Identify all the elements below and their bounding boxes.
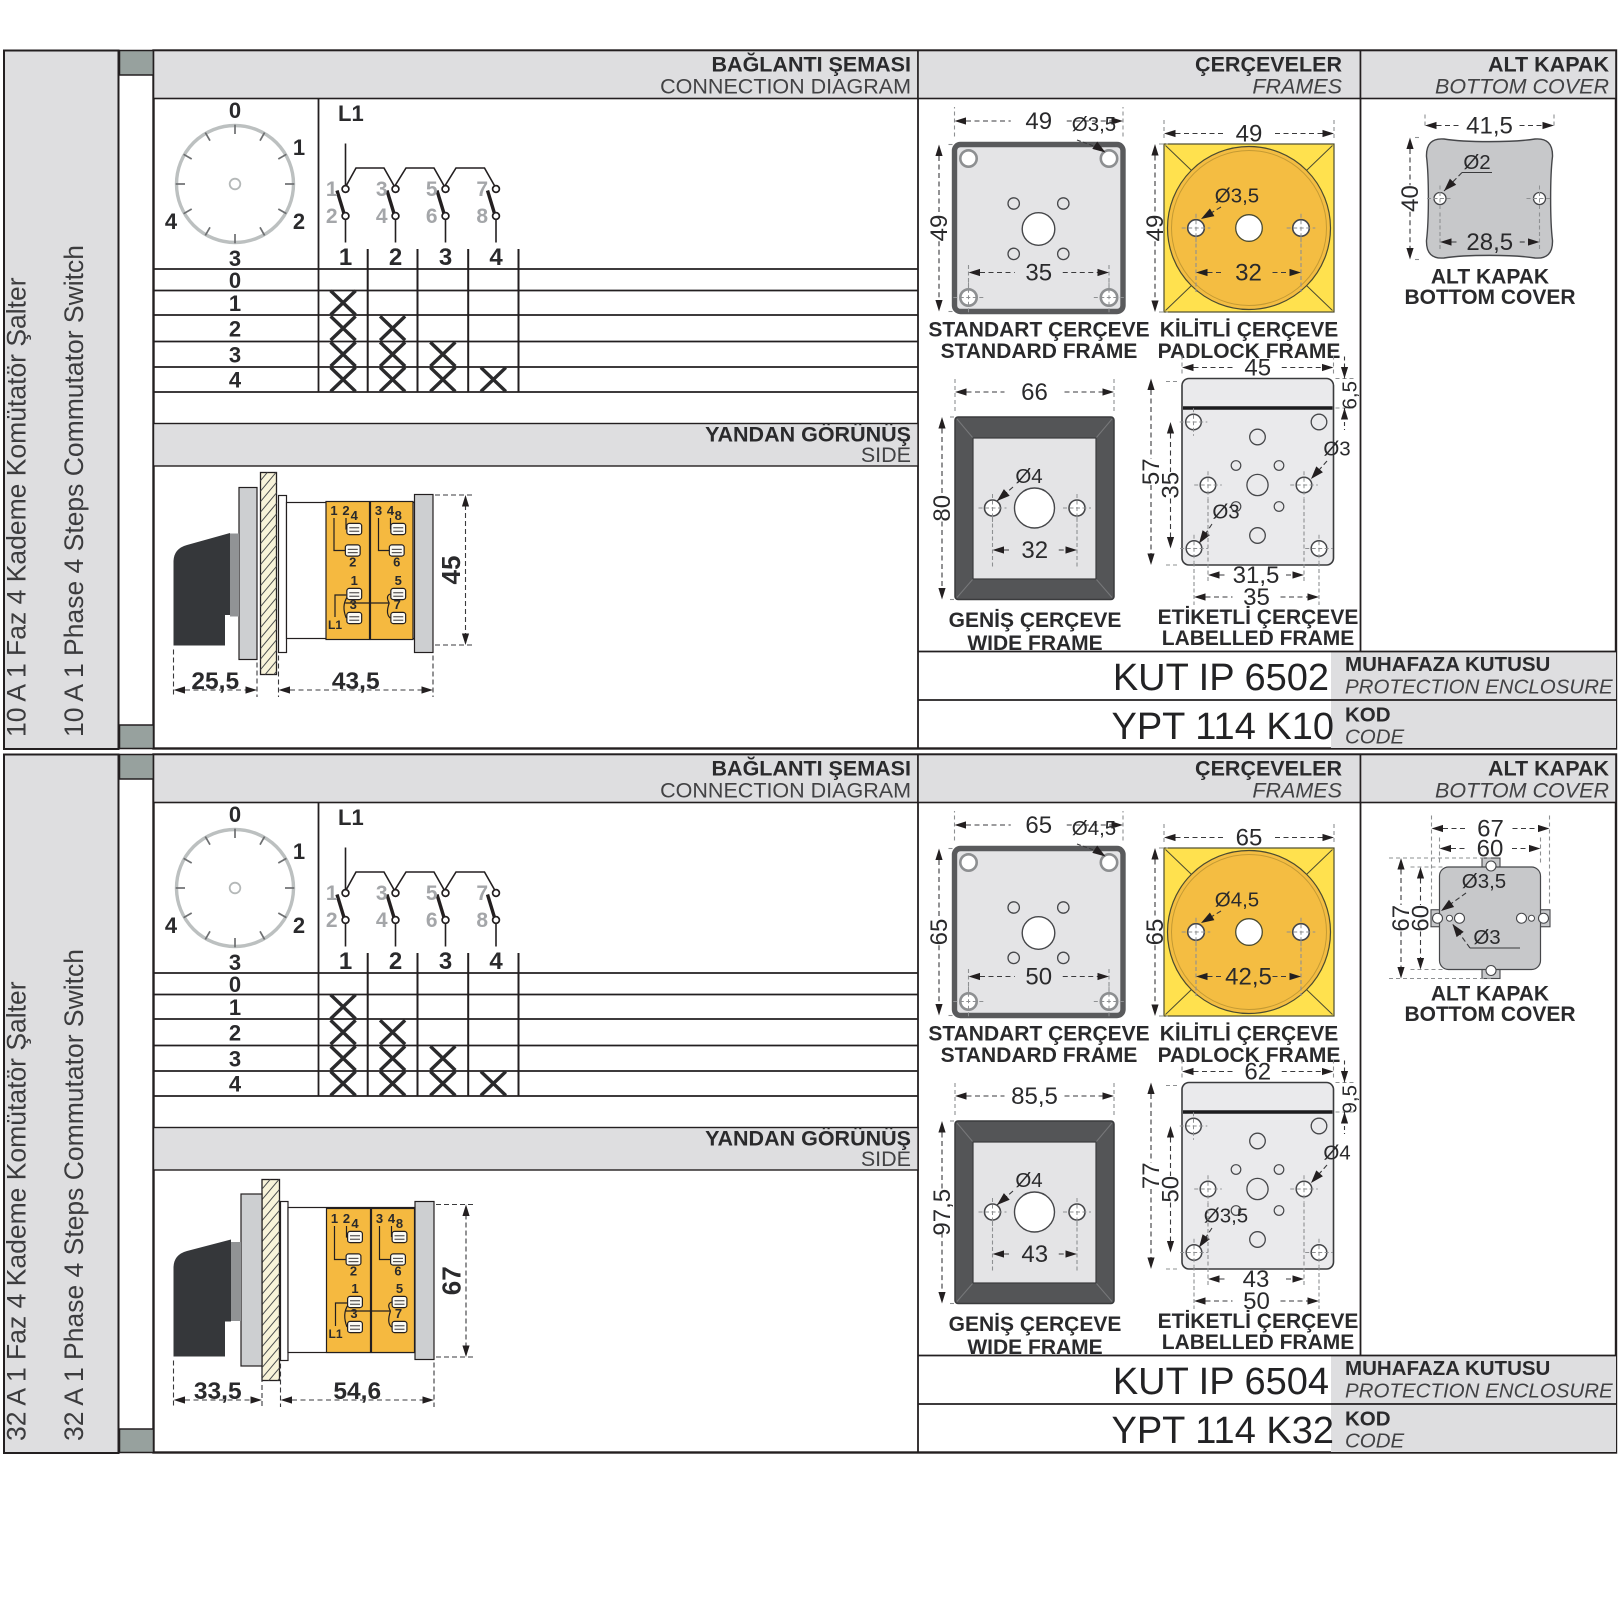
svg-text:5: 5 <box>426 882 438 905</box>
svg-text:PROTECTION ENCLOSURE: PROTECTION ENCLOSURE <box>1345 1380 1613 1403</box>
svg-text:49: 49 <box>1025 108 1052 135</box>
svg-text:49: 49 <box>1142 215 1169 242</box>
svg-text:BAĞLANTI ŞEMASI: BAĞLANTI ŞEMASI <box>712 52 911 77</box>
svg-text:2: 2 <box>343 1211 350 1226</box>
svg-text:PROTECTION ENCLOSURE: PROTECTION ENCLOSURE <box>1345 676 1613 699</box>
svg-text:0: 0 <box>229 268 241 293</box>
svg-text:65: 65 <box>1025 812 1052 839</box>
svg-text:1: 1 <box>326 882 338 905</box>
svg-text:3: 3 <box>439 244 452 271</box>
svg-text:32: 32 <box>1235 259 1262 286</box>
svg-text:65: 65 <box>926 919 953 946</box>
svg-text:SIDE: SIDE <box>861 443 911 467</box>
svg-text:43,5: 43,5 <box>332 668 380 695</box>
svg-text:4: 4 <box>489 244 503 271</box>
svg-text:1: 1 <box>229 291 241 316</box>
svg-text:32 A 1 Phase 4 Steps Commutato: 32 A 1 Phase 4 Steps Commutator Switch <box>59 949 89 1441</box>
svg-text:4: 4 <box>376 909 388 932</box>
svg-text:2: 2 <box>342 503 349 518</box>
svg-text:3: 3 <box>376 882 388 905</box>
svg-text:32 A 1 Faz 4 Kademe Komütatör: 32 A 1 Faz 4 Kademe Komütatör Şalter <box>2 981 32 1441</box>
svg-text:2: 2 <box>229 1020 241 1045</box>
svg-text:2: 2 <box>389 244 402 271</box>
svg-text:40: 40 <box>1397 185 1424 212</box>
svg-text:28,5: 28,5 <box>1466 229 1513 256</box>
svg-text:3: 3 <box>229 342 241 367</box>
svg-text:GENİŞ ÇERÇEVE: GENİŞ ÇERÇEVE <box>949 609 1122 632</box>
svg-text:4: 4 <box>376 205 388 228</box>
svg-text:62: 62 <box>1244 1058 1271 1085</box>
svg-text:3: 3 <box>350 597 357 612</box>
svg-text:BOTTOM COVER: BOTTOM COVER <box>1404 1003 1575 1026</box>
svg-text:LABELLED FRAME: LABELLED FRAME <box>1162 627 1355 650</box>
svg-text:2: 2 <box>350 1264 357 1279</box>
svg-text:1: 1 <box>326 178 338 201</box>
svg-text:6,5: 6,5 <box>1339 381 1362 410</box>
svg-text:4: 4 <box>351 1216 359 1231</box>
svg-text:Ø4: Ø4 <box>1015 465 1042 488</box>
svg-text:KİLİTLİ ÇERÇEVE: KİLİTLİ ÇERÇEVE <box>1160 1023 1339 1046</box>
svg-text:6: 6 <box>426 909 438 932</box>
svg-text:SIDE: SIDE <box>861 1147 911 1171</box>
svg-text:4: 4 <box>229 1072 242 1097</box>
svg-text:LABELLED FRAME: LABELLED FRAME <box>1162 1331 1355 1354</box>
svg-text:2: 2 <box>293 209 305 234</box>
svg-text:YPT 114 K32: YPT 114 K32 <box>1111 1410 1334 1452</box>
svg-text:50: 50 <box>1157 1176 1184 1203</box>
svg-text:STANDART ÇERÇEVE: STANDART ÇERÇEVE <box>928 319 1149 342</box>
svg-text:8: 8 <box>476 909 488 932</box>
svg-text:1: 1 <box>229 995 241 1020</box>
svg-text:45: 45 <box>1244 354 1271 381</box>
svg-text:ETİKETLİ ÇERÇEVE: ETİKETLİ ÇERÇEVE <box>1158 1310 1359 1333</box>
svg-text:Ø4: Ø4 <box>1015 1169 1042 1192</box>
svg-text:5: 5 <box>426 178 438 201</box>
svg-text:KUT IP 6504: KUT IP 6504 <box>1113 1361 1329 1403</box>
svg-text:4: 4 <box>229 368 242 393</box>
svg-text:1: 1 <box>330 503 337 518</box>
svg-text:41,5: 41,5 <box>1466 112 1513 139</box>
svg-text:L1: L1 <box>328 618 342 632</box>
svg-text:2: 2 <box>349 555 356 570</box>
svg-text:ÇERÇEVELER: ÇERÇEVELER <box>1195 53 1342 77</box>
svg-text:Ø3: Ø3 <box>1212 501 1239 524</box>
svg-text:7: 7 <box>395 1306 402 1321</box>
svg-text:4: 4 <box>489 948 503 975</box>
svg-text:1: 1 <box>293 135 305 160</box>
svg-text:65: 65 <box>1236 824 1263 851</box>
svg-text:1: 1 <box>351 1281 358 1296</box>
svg-text:49: 49 <box>926 215 953 242</box>
svg-text:ÇERÇEVELER: ÇERÇEVELER <box>1195 757 1342 781</box>
svg-text:2: 2 <box>326 205 338 228</box>
svg-text:66: 66 <box>1021 379 1048 406</box>
svg-text:MUHAFAZA KUTUSU: MUHAFAZA KUTUSU <box>1345 653 1550 676</box>
svg-text:CONNECTION DIAGRAM: CONNECTION DIAGRAM <box>660 779 911 803</box>
svg-text:60: 60 <box>1407 905 1434 932</box>
svg-text:0: 0 <box>229 802 241 827</box>
svg-text:KUT IP 6502: KUT IP 6502 <box>1113 657 1329 699</box>
svg-text:Ø3: Ø3 <box>1473 926 1500 949</box>
svg-text:10 A 1 Faz 4 Kademe Komütatör: 10 A 1 Faz 4 Kademe Komütatör Şalter <box>2 277 32 737</box>
svg-text:L1: L1 <box>328 1327 342 1341</box>
svg-text:2: 2 <box>326 909 338 932</box>
svg-text:49: 49 <box>1236 120 1263 147</box>
svg-text:KİLİTLİ ÇERÇEVE: KİLİTLİ ÇERÇEVE <box>1160 319 1339 342</box>
svg-text:Ø3: Ø3 <box>1323 438 1350 461</box>
svg-text:32: 32 <box>1021 537 1048 564</box>
svg-text:4: 4 <box>351 508 359 523</box>
svg-text:10 A 1 Phase 4 Steps Commutato: 10 A 1 Phase 4 Steps Commutator Switch <box>59 245 89 737</box>
svg-text:3: 3 <box>375 503 382 518</box>
svg-text:ETİKETLİ ÇERÇEVE: ETİKETLİ ÇERÇEVE <box>1158 606 1359 629</box>
svg-text:35: 35 <box>1025 259 1052 286</box>
svg-text:7: 7 <box>476 882 488 905</box>
svg-text:FRAMES: FRAMES <box>1252 779 1342 803</box>
svg-text:Ø3,5: Ø3,5 <box>1072 113 1116 136</box>
svg-text:65: 65 <box>1142 919 1169 946</box>
svg-text:80: 80 <box>929 495 956 522</box>
svg-text:67: 67 <box>437 1266 467 1295</box>
svg-text:CONNECTION DIAGRAM: CONNECTION DIAGRAM <box>660 75 911 99</box>
svg-text:5: 5 <box>396 1281 403 1296</box>
svg-text:3: 3 <box>376 1211 383 1226</box>
svg-text:3: 3 <box>439 948 452 975</box>
svg-text:33,5: 33,5 <box>194 1378 242 1405</box>
svg-text:3: 3 <box>350 1306 357 1321</box>
svg-text:STANDARD FRAME: STANDARD FRAME <box>941 340 1138 363</box>
svg-text:4: 4 <box>165 913 178 938</box>
svg-text:0: 0 <box>229 98 241 123</box>
svg-text:8: 8 <box>396 1216 403 1231</box>
svg-text:7: 7 <box>476 178 488 201</box>
svg-text:2: 2 <box>293 913 305 938</box>
svg-text:STANDARD FRAME: STANDARD FRAME <box>941 1044 1138 1067</box>
svg-text:1: 1 <box>351 573 358 588</box>
svg-text:KOD: KOD <box>1345 1408 1391 1431</box>
svg-text:Ø3,5: Ø3,5 <box>1462 870 1506 893</box>
svg-text:KOD: KOD <box>1345 704 1391 727</box>
svg-text:Ø2: Ø2 <box>1463 151 1490 174</box>
svg-text:L1: L1 <box>338 805 364 830</box>
svg-text:CODE: CODE <box>1345 726 1405 749</box>
svg-text:Ø3,5: Ø3,5 <box>1204 1205 1248 1228</box>
svg-text:BAĞLANTI ŞEMASI: BAĞLANTI ŞEMASI <box>712 756 911 781</box>
svg-text:Ø4,5: Ø4,5 <box>1072 817 1116 840</box>
svg-text:97,5: 97,5 <box>929 1189 956 1236</box>
svg-text:Ø4: Ø4 <box>1323 1142 1350 1165</box>
svg-text:STANDART ÇERÇEVE: STANDART ÇERÇEVE <box>928 1023 1149 1046</box>
svg-text:3: 3 <box>376 178 388 201</box>
svg-text:1: 1 <box>293 839 305 864</box>
svg-text:45: 45 <box>436 556 466 585</box>
svg-text:8: 8 <box>395 508 402 523</box>
svg-text:BOTTOM COVER: BOTTOM COVER <box>1404 286 1575 309</box>
svg-text:5: 5 <box>395 573 402 588</box>
svg-text:54,6: 54,6 <box>333 1378 381 1405</box>
svg-text:43: 43 <box>1021 1241 1048 1268</box>
svg-text:7: 7 <box>394 597 401 612</box>
svg-text:0: 0 <box>229 972 241 997</box>
svg-text:42,5: 42,5 <box>1225 963 1272 990</box>
svg-text:3: 3 <box>229 1046 241 1071</box>
svg-text:2: 2 <box>229 316 241 341</box>
svg-text:YPT 114 K10: YPT 114 K10 <box>1111 706 1334 748</box>
svg-text:9,5: 9,5 <box>1339 1085 1362 1114</box>
svg-text:FRAMES: FRAMES <box>1252 75 1342 99</box>
svg-text:1: 1 <box>339 948 352 975</box>
svg-text:Ø3,5: Ø3,5 <box>1215 185 1259 208</box>
svg-text:L1: L1 <box>338 101 364 126</box>
svg-text:6: 6 <box>393 555 400 570</box>
svg-text:4: 4 <box>388 1211 396 1226</box>
svg-text:1: 1 <box>339 244 352 271</box>
svg-text:6: 6 <box>426 205 438 228</box>
svg-text:8: 8 <box>476 205 488 228</box>
svg-text:Ø4,5: Ø4,5 <box>1215 889 1259 912</box>
svg-text:1: 1 <box>331 1211 338 1226</box>
svg-text:85,5: 85,5 <box>1011 1083 1058 1110</box>
svg-text:MUHAFAZA KUTUSU: MUHAFAZA KUTUSU <box>1345 1357 1550 1380</box>
svg-text:4: 4 <box>165 209 178 234</box>
svg-text:25,5: 25,5 <box>191 668 239 695</box>
svg-text:ALT KAPAK: ALT KAPAK <box>1488 757 1609 781</box>
svg-text:2: 2 <box>389 948 402 975</box>
svg-text:BOTTOM COVER: BOTTOM COVER <box>1435 75 1609 99</box>
svg-text:BOTTOM COVER: BOTTOM COVER <box>1435 779 1609 803</box>
svg-text:GENİŞ ÇERÇEVE: GENİŞ ÇERÇEVE <box>949 1313 1122 1336</box>
svg-text:6: 6 <box>394 1264 401 1279</box>
svg-text:ALT KAPAK: ALT KAPAK <box>1488 53 1609 77</box>
svg-text:35: 35 <box>1157 472 1184 499</box>
svg-text:50: 50 <box>1025 963 1052 990</box>
svg-text:CODE: CODE <box>1345 1430 1405 1453</box>
